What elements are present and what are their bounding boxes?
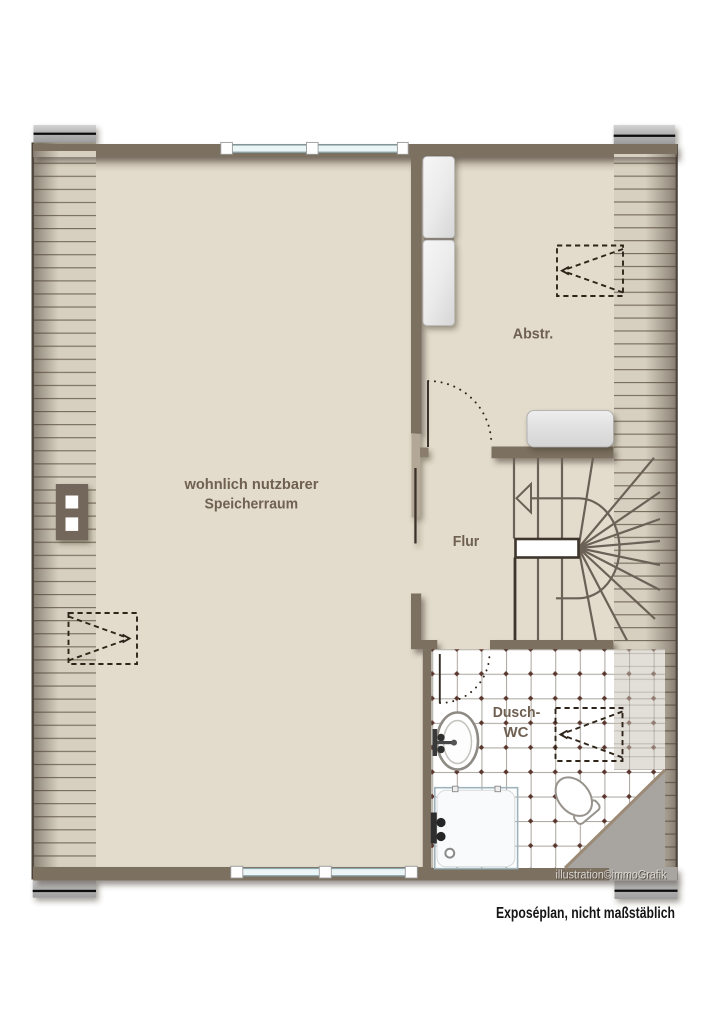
svg-text:Dusch-: Dusch-	[493, 705, 541, 721]
svg-text:illustration©immoGrafik: illustration©immoGrafik	[556, 869, 667, 881]
svg-text:Flur: Flur	[453, 534, 480, 550]
svg-text:Exposéplan, nicht maßstäblich: Exposéplan, nicht maßstäblich	[496, 905, 675, 922]
svg-text:Speicherraum: Speicherraum	[205, 496, 299, 513]
svg-text:WC: WC	[504, 725, 530, 741]
svg-text:wohnlich nutzbarer: wohnlich nutzbarer	[184, 476, 319, 493]
svg-text:Abstr.: Abstr.	[513, 327, 554, 343]
